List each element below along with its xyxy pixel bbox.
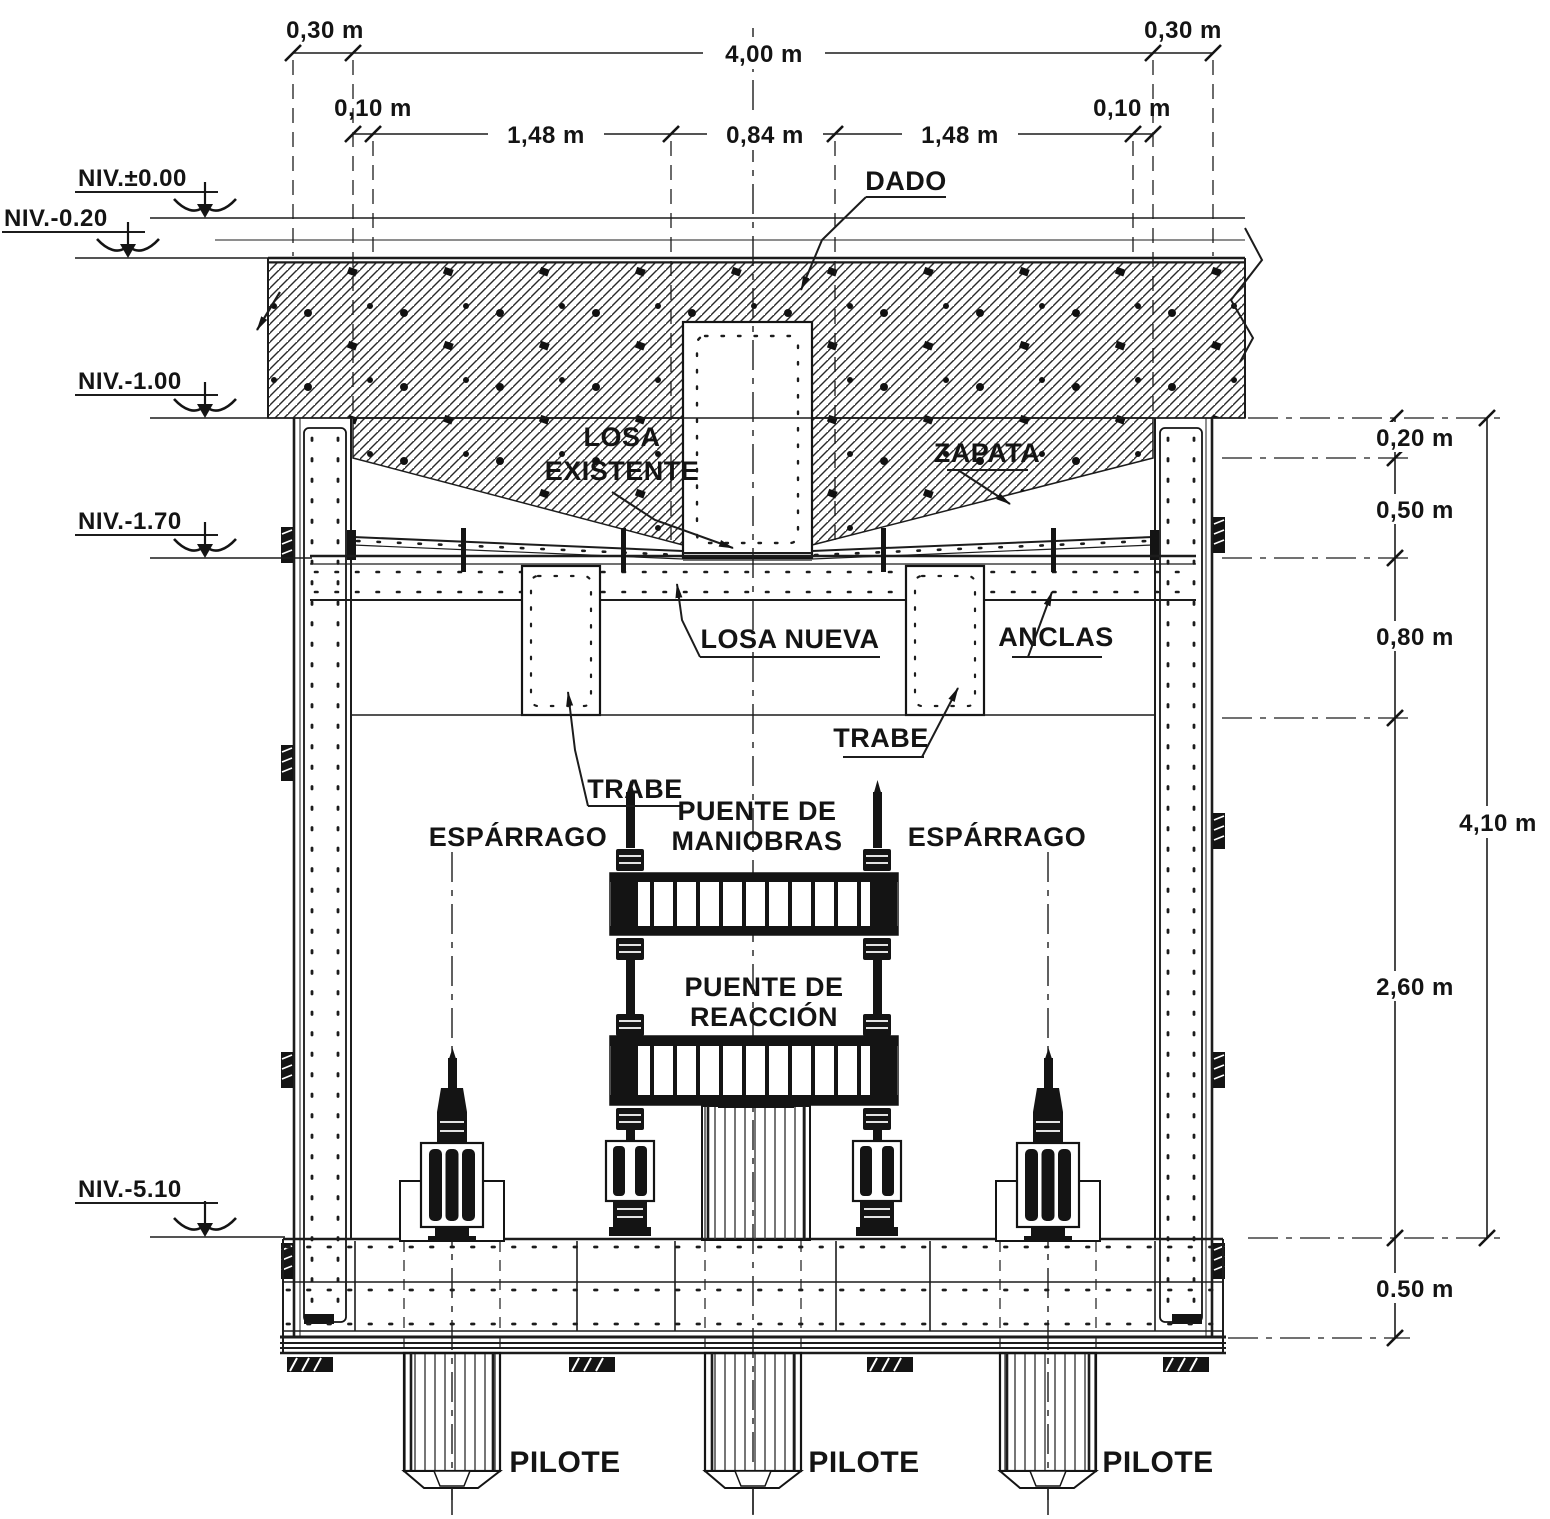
dim-148-left: 1,48 m xyxy=(507,122,585,149)
dim-400: 4,00 m xyxy=(725,41,803,68)
label-puente-reaccion-1: PUENTE DE xyxy=(684,972,843,1002)
foundation-section-drawing: 0,30 m 4,00 m 0,30 m 0,10 m 1,48 m 0,84 … xyxy=(0,0,1550,1519)
pile-center xyxy=(705,1353,801,1515)
level-marker-icon xyxy=(174,522,236,558)
label-zapata: ZAPATA xyxy=(934,438,1040,468)
level-niv-510: NIV.-5.10 xyxy=(78,1176,182,1203)
dimensions-right: 0,20 m 0,50 m 0,80 m 2,60 m 0.50 m 4,10 … xyxy=(1222,410,1550,1346)
label-losa-nueva: LOSA NUEVA xyxy=(700,624,879,654)
dim-050: 0,50 m xyxy=(1376,497,1454,524)
jack-inner-left xyxy=(606,1141,654,1236)
slab-hidden-lines xyxy=(404,1241,1096,1348)
jack-outer-right xyxy=(1017,1143,1079,1242)
label-pilote-right: PILOTE xyxy=(1102,1446,1213,1479)
level-niv-020: NIV.-0.20 xyxy=(4,205,108,232)
dim-080: 0,80 m xyxy=(1376,624,1454,651)
dim-410: 4,10 m xyxy=(1459,810,1537,837)
drawing-svg: 0,30 m 4,00 m 0,30 m 0,10 m 1,48 m 0,84 … xyxy=(0,0,1550,1519)
level-marker-icon xyxy=(174,1201,236,1237)
dim-030-left: 0,30 m xyxy=(286,17,364,44)
label-losa-existente-2: EXISTENTE xyxy=(545,456,700,486)
dado-pedestal xyxy=(683,322,812,558)
ancla-bolt xyxy=(461,528,466,572)
jack-inner-right xyxy=(853,1141,901,1236)
level-niv-100: NIV.-1.00 xyxy=(78,368,182,395)
soil-mark xyxy=(287,1357,333,1372)
dim-084: 0,84 m xyxy=(726,122,804,149)
ancla-bolt xyxy=(621,528,626,572)
level-niv-000: NIV.±0.00 xyxy=(78,165,187,192)
label-trabe-right: TRABE xyxy=(833,723,929,753)
dim-020: 0,20 m xyxy=(1376,425,1454,452)
label-pilote-left: PILOTE xyxy=(509,1446,620,1479)
dim-010-right: 0,10 m xyxy=(1093,95,1171,122)
piles xyxy=(404,1353,1096,1515)
puente-maniobras-beam xyxy=(610,873,898,935)
pile-left xyxy=(404,1353,500,1515)
dim-010-left: 0,10 m xyxy=(334,95,412,122)
label-esparrago-right: ESPÁRRAGO xyxy=(908,821,1087,852)
wall-cage-right xyxy=(1160,428,1202,1322)
wall-cage-left xyxy=(304,428,346,1322)
label-losa-existente-1: LOSA xyxy=(583,422,660,452)
ancla-bolt xyxy=(881,528,886,572)
level-markers: NIV.±0.00 NIV.-0.20 NIV.-1.00 NIV.-1.70 … xyxy=(2,165,312,1237)
centerlines xyxy=(452,28,1048,1515)
label-pilote-center: PILOTE xyxy=(808,1446,919,1479)
level-niv-170: NIV.-1.70 xyxy=(78,508,182,535)
rod-outer-right xyxy=(996,1048,1100,1242)
trabe-right xyxy=(906,566,984,715)
pile-right xyxy=(1000,1353,1096,1515)
soil-mark xyxy=(867,1357,913,1372)
existing-pile-cap xyxy=(75,218,1262,558)
label-puente-maniobras-1: PUENTE DE xyxy=(677,796,836,826)
soil-mark xyxy=(569,1357,615,1372)
label-dado: DADO xyxy=(865,166,947,196)
label-anclas: ANCLAS xyxy=(998,622,1114,652)
label-esparrago-left: ESPÁRRAGO xyxy=(429,821,608,852)
dim-030-right: 0,30 m xyxy=(1144,17,1222,44)
dim-260: 2,60 m xyxy=(1376,974,1454,1001)
ancla-bolt xyxy=(1051,528,1056,572)
dim-050b: 0.50 m xyxy=(1376,1276,1454,1303)
puente-reaccion-beam xyxy=(610,1036,898,1105)
rod-outer-left xyxy=(400,1048,504,1242)
center-pile-column xyxy=(702,1106,810,1240)
rod-inner-left xyxy=(606,780,654,1236)
rod-inner-right xyxy=(853,780,901,1236)
dim-148-right: 1,48 m xyxy=(921,122,999,149)
label-puente-maniobras-2: MANIOBRAS xyxy=(672,826,843,856)
soil-mark xyxy=(1163,1357,1209,1372)
level-marker-icon xyxy=(174,382,236,418)
trabe-left xyxy=(522,566,600,715)
jack-outer-left xyxy=(421,1143,483,1242)
slab-panel-joints xyxy=(355,1241,1155,1331)
label-trabe-left: TRABE xyxy=(587,774,683,804)
label-puente-reaccion-2: REACCIÓN xyxy=(690,1001,838,1032)
